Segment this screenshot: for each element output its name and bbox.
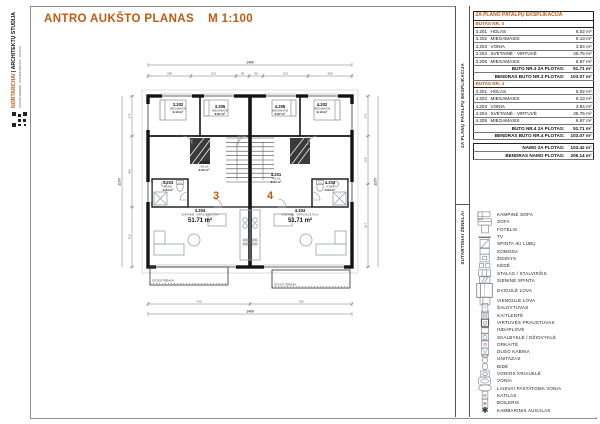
page-title: ANTRO AUKŠTO PLANASM 1:100: [44, 13, 253, 25]
plan-text: 6.97 m²: [275, 112, 286, 116]
plan-text: 51.71 m²: [188, 217, 212, 224]
house-total-row: BENDRAS NAMO PLOTAS:206.14 m²: [474, 152, 594, 160]
house-totals-table: NAMO 2A PLOTAS:103.42 m²BENDRAS NAMO PLO…: [473, 143, 594, 160]
brand-name: NORTARCHAI: [11, 74, 17, 108]
plan-text: 90: [241, 71, 245, 75]
legend-item-label: KAMBARINIS AUGALAS: [497, 408, 551, 413]
plan-text: 3.202: [173, 102, 184, 107]
room-row: 4.201HOLAS6.02 m²: [474, 87, 594, 94]
legend-item-label: KATILAS: [497, 393, 517, 398]
plan-text: STOGO TERASA: [274, 283, 296, 287]
house-total-row: NAMO 2A PLOTAS:103.42 m²: [474, 144, 594, 152]
explication-table: 2A PLANO PATALPŲ EKSPLIKACIJA BUTAS NR. …: [473, 11, 594, 140]
plan-text: 298: [167, 71, 172, 75]
drawing-sheet-page: { "page": { "title": "ANTRO AUKŠTO PLANA…: [0, 0, 600, 424]
legend-item-label: INDAPLOVĖ: [497, 327, 525, 332]
explication-title: 2A PLANO PATALPŲ EKSPLIKACIJA: [474, 12, 594, 21]
plan-text: 4.202: [317, 102, 328, 107]
plan-text: 700: [196, 299, 201, 303]
legend-item-label: DUŠO KABINA: [497, 349, 530, 354]
room-row: 3.202MIEGAMASIS9.13 m²: [474, 35, 594, 42]
studio-name: | ARCHITEKTŲ STUDIJA: [11, 12, 17, 72]
drawing-title: ANTRO AUKŠTO PLANAS: [44, 13, 194, 25]
legend-item-label: SIENINĖ SPINTA: [497, 278, 535, 283]
room-explication-block: 2A PLANO PATALPŲ EKSPLIKACIJA BUTAS NR. …: [473, 11, 594, 160]
plan-text: 4: [267, 190, 274, 202]
legend-item-label: VIENGULĖ LOVA: [497, 298, 535, 303]
legend-item-label: ŽIDINYS: [497, 256, 516, 261]
plan-text: 486: [127, 169, 131, 174]
legend-item-label: KOMODA: [497, 249, 518, 254]
plan-text: 3.84 m²: [163, 188, 174, 192]
legend-item: ✱KAMBARINIS AUGALAS: [473, 406, 595, 413]
plan-text: 410: [127, 234, 131, 239]
room-row: 3.205MIEGAMASIS6.97 m²: [474, 58, 594, 65]
apartment-summary-row: BUTO NR.4 2A PLOTAS:51.71 m²: [474, 125, 594, 132]
apartment-summary-row: BUTO NR.3 2A PLOTAS:51.71 m²: [474, 65, 594, 72]
legend-item-label: SKALBYKLĖ / DŽIOVYKLĖ: [497, 335, 556, 340]
plan-text: 4.204: [295, 208, 306, 213]
plan-text: 4.205: [275, 104, 286, 109]
legend-item-label: BOILERIS: [497, 400, 519, 405]
legend-panel-label: SUTARTINIAI ŽENKLAI: [460, 211, 465, 264]
architect-logo-block: NORTARCHAI | ARCHITEKTŲ STUDIJA PROJEKTA…: [11, 8, 22, 108]
legend-item-label: TV: [497, 234, 503, 239]
room-row: 3.203VONIA3.84 m²: [474, 43, 594, 50]
room-row: 4.202MIEGAMASIS9.13 m²: [474, 95, 594, 102]
legend-item-label: VIRTUVĖS PRAUSTUVAS: [497, 320, 555, 325]
legend-item-label: VONIOS KRIAUKLĖ: [497, 371, 541, 376]
drawing-scale: M 1:100: [208, 13, 253, 25]
legend-item-label: SOFA: [497, 219, 510, 224]
stair-shaft-right: [290, 138, 310, 164]
plan-text: 329: [363, 157, 367, 162]
plan-text: 9.13 m²: [173, 110, 184, 114]
room-row: 4.203VONIA3.84 m²: [474, 102, 594, 109]
legend-item-label: ŠALDYTUVAS: [497, 305, 528, 310]
plan-text: 6.02 m²: [199, 168, 210, 172]
legend-item-label: KAMPINĖ SOFA: [497, 212, 533, 217]
apartment-summary-row: BENDRAS BUTO NR.3 PLOTAS:103.07 m²: [474, 73, 594, 80]
plan-text: 274: [127, 113, 131, 118]
symbols-legend: KAMPINĖ SOFASOFAFOTELISTVSPINTA IKI LUBŲ…: [473, 211, 595, 414]
plan-text: 3.84 m²: [325, 188, 336, 192]
apartment-summary-row: BENDRAS BUTO NR.4 PLOTAS:103.07 m²: [474, 132, 594, 139]
plan-text: 3.203: [163, 180, 174, 185]
qr-code-icon: [12, 112, 27, 127]
architect-logo-text: NORTARCHAI | ARCHITEKTŲ STUDIJA: [11, 8, 17, 108]
plan-text: 3.204: [195, 208, 206, 213]
legend-item-label: KAITLENTĖ: [497, 313, 523, 318]
plan-text: 6.97 m²: [215, 112, 226, 116]
legend-item-label: ORKAITĖ: [497, 342, 518, 347]
room-row: 3.204SVETAINĖ - VIRTUVĖ25.75 m²: [474, 50, 594, 57]
plan-text: 274: [363, 113, 367, 118]
room-row: 4.204SVETAINĖ - VIRTUVĖ25.75 m²: [474, 110, 594, 117]
legend-item-label: FOTELIS: [497, 227, 517, 232]
plan-text: 3.205: [215, 104, 226, 109]
plan-text: 51.71 m²: [288, 217, 312, 224]
architect-contact-text: PROJEKTAVIMAS · KONSULTACIJOS · VILNIUS: [18, 8, 22, 108]
room-row: 3.201HOLAS6.02 m²: [474, 28, 594, 35]
plan-text: 9.13 m²: [317, 110, 328, 114]
plan-text: STOGO TERASA: [152, 279, 174, 283]
legend-item-label: DVIGULĖ LOVA: [497, 288, 532, 293]
plan-text: 700: [298, 299, 303, 303]
plan-text: 1170: [374, 178, 378, 185]
explication-panel-label: 2A PLANŲ PATALPŲ EKSPLIKACIJA: [460, 63, 465, 148]
plant-icon: ✱: [473, 404, 497, 416]
plan-text: 298: [327, 71, 332, 75]
plan-text: 1400: [246, 61, 254, 65]
floor-plan-drawing: 3.202MIEGAMASIS9.13 m²3.205MIEGAMASIS6.9…: [88, 52, 408, 352]
plan-text: 1170: [118, 178, 122, 185]
plan-text: 1400: [246, 310, 254, 314]
legend-item-label: LAISVAI PASTATOMA VONIA: [497, 386, 561, 391]
apartment-heading-row: BUTAS NR. 3: [474, 20, 594, 27]
apartment-heading-row: BUTAS NR. 4: [474, 80, 594, 87]
room-row: 4.205MIEGAMASIS6.97 m²: [474, 117, 594, 124]
plan-text: 312: [283, 71, 288, 75]
legend-item-label: STALAS / STALVIRŠIS: [497, 271, 547, 276]
right-info-panel: 2A PLANŲ PATALPŲ EKSPLIKACIJA SUTARTINIA…: [455, 6, 597, 417]
plan-text: 90: [254, 71, 258, 75]
legend-item-label: SPINTA IKI LUBŲ: [497, 241, 536, 246]
legend-item-label: KĖDĖ: [497, 263, 510, 268]
legend-item-label: UNITAZAS: [497, 356, 521, 361]
plan-text: 6.02 m²: [271, 180, 282, 184]
plan-text: 312: [211, 71, 216, 75]
svg-text:✱: ✱: [481, 405, 488, 415]
plan-text: 4.203: [325, 180, 336, 185]
legend-item-label: BIDĖ: [497, 364, 508, 369]
plan-text: 567: [363, 223, 367, 228]
plan-text: 3.201: [199, 160, 210, 165]
panel-side-strip: 2A PLANŲ PATALPŲ EKSPLIKACIJA SUTARTINIA…: [456, 6, 470, 417]
plan-text: 3: [213, 190, 219, 202]
legend-item-label: VONIA: [497, 378, 512, 383]
plan-text: 4.201: [271, 172, 282, 177]
